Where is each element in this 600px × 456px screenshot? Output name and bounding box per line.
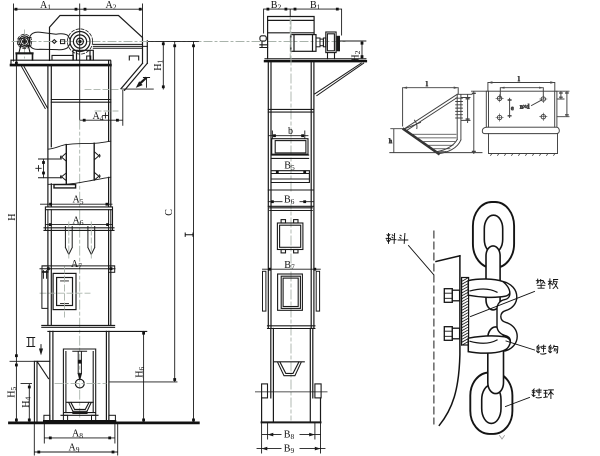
svg-text:e: e	[511, 106, 514, 112]
svg-text:B5: B5	[284, 160, 295, 172]
svg-text:A1: A1	[40, 0, 51, 12]
svg-text:C: C	[164, 209, 175, 216]
svg-text:B7: B7	[284, 260, 295, 272]
svg-text:A9: A9	[69, 442, 80, 454]
svg-text:b: b	[288, 126, 293, 137]
svg-text:B2: B2	[271, 0, 282, 12]
svg-text:H5: H5	[7, 386, 18, 397]
svg-text:H2: H2	[351, 50, 363, 61]
svg-text:A6: A6	[73, 216, 84, 228]
svg-text:A5: A5	[73, 194, 84, 206]
svg-text:A2: A2	[106, 0, 117, 12]
svg-text:A8: A8	[72, 428, 83, 440]
svg-text:n×d: n×d	[520, 105, 529, 111]
svg-text:A4: A4	[93, 111, 104, 123]
svg-text:B1: B1	[310, 0, 321, 12]
svg-text:H4: H4	[21, 396, 33, 407]
svg-text:A7: A7	[71, 259, 82, 271]
svg-text:H: H	[7, 213, 18, 220]
svg-text:B8: B8	[284, 430, 295, 442]
svg-text:B6: B6	[284, 194, 295, 206]
svg-text:h: h	[389, 139, 392, 145]
svg-text:l: l	[518, 76, 520, 83]
svg-text:H6: H6	[135, 366, 147, 377]
svg-text:B9: B9	[284, 444, 295, 456]
svg-text:l: l	[426, 81, 428, 88]
svg-text:H1: H1	[153, 59, 165, 70]
